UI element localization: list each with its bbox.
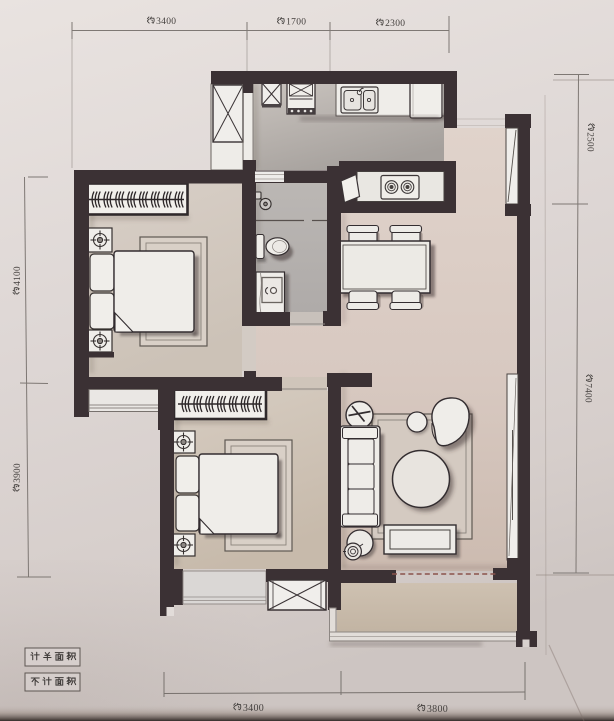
- svg-text:7400: 7400: [584, 383, 594, 403]
- svg-text:1700: 1700: [286, 18, 306, 28]
- svg-text:3400: 3400: [243, 703, 264, 714]
- svg-text:4100: 4100: [12, 266, 22, 286]
- svg-text:2500: 2500: [586, 132, 596, 152]
- svg-text:3900: 3900: [12, 463, 22, 483]
- svg-text:3800: 3800: [427, 704, 448, 715]
- svg-text:2300: 2300: [385, 19, 405, 29]
- svg-text:3400: 3400: [156, 17, 176, 27]
